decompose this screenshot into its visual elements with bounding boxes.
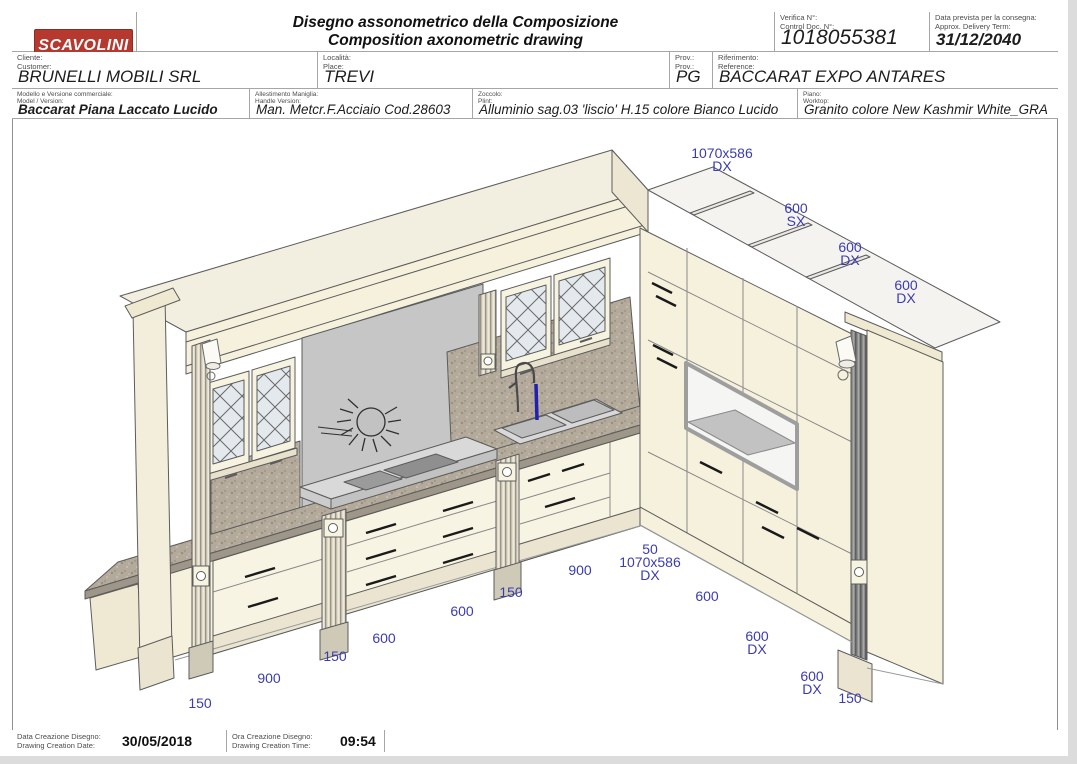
page-edge-bottom — [0, 756, 1077, 764]
model-value: Baccarat Piana Laccato Lucido — [18, 102, 218, 117]
creation-date-cell: Data Creazione Disegno: Drawing Creation… — [12, 730, 227, 752]
control-doc-cell: Verifica N°: Control Doc. N°: 1018055381 — [775, 12, 930, 52]
delivery-cell: Data prevista per la consegna: Approx. D… — [930, 12, 1058, 52]
customer-label-it: Cliente: — [12, 52, 317, 63]
prov-value: PG — [676, 67, 701, 87]
plinth-label-it: Zoccolo: — [473, 89, 797, 98]
worktop-cell: Piano: Worktop: Granito colore New Kashm… — [798, 89, 1058, 119]
creation-date-value: 30/05/2018 — [122, 733, 192, 749]
reference-cell: Riferimento: Reference: BACCARAT EXPO AN… — [713, 52, 1058, 89]
creation-date-label-it: Data Creazione Disegno: — [12, 730, 226, 741]
creation-date-label-en: Drawing Creation Date: — [12, 741, 226, 750]
title-cell: Disegno assonometrico della Composizione… — [137, 12, 775, 52]
customer-cell: Cliente: Customer: BRUNELLI MOBILI SRL — [12, 52, 318, 89]
creation-time-cell: Ora Creazione Disegno: Drawing Creation … — [227, 730, 385, 752]
control-doc-number: 1018055381 — [781, 26, 898, 50]
handle-value: Man. Metcr.F.Acciaio Cod.28603 — [256, 102, 450, 117]
logo-cell: SCAVOLINI — [12, 12, 137, 52]
place-cell: Località: Place: TREVI — [318, 52, 670, 89]
reference-label-it: Riferimento: — [713, 52, 1058, 63]
delivery-date: 31/12/2040 — [936, 30, 1021, 50]
plinth-value: Alluminio sag.03 'liscio' H.15 colore Bi… — [479, 102, 778, 117]
page-edge-right — [1068, 0, 1077, 764]
prov-cell: Prov.: Prov.: PG — [670, 52, 713, 89]
place-name: TREVI — [324, 67, 374, 87]
customer-name: BRUNELLI MOBILI SRL — [18, 67, 201, 87]
handle-cell: Allestimento Maniglia: Handle Version: M… — [250, 89, 473, 119]
plinth-cell: Zoccolo: Plint: Alluminio sag.03 'liscio… — [473, 89, 798, 119]
sheet-border — [12, 12, 1058, 752]
model-cell: Modello e Versione commerciale: Model / … — [12, 89, 250, 119]
control-doc-label-it: Verifica N°: — [775, 12, 929, 23]
reference-value: BACCARAT EXPO ANTARES — [719, 67, 945, 87]
worktop-label-it: Piano: — [798, 89, 1058, 98]
model-label-it: Modello e Versione commerciale: — [12, 89, 249, 98]
footer-empty-cell — [385, 730, 1058, 752]
prov-label-it: Prov.: — [670, 52, 712, 63]
worktop-value: Granito colore New Kashmir White_GRA — [804, 102, 1048, 117]
place-label-it: Località: — [318, 52, 669, 63]
creation-time-value: 09:54 — [340, 733, 376, 749]
document-title-en: Composition axonometric drawing — [328, 32, 583, 50]
handle-label-it: Allestimento Maniglia: — [250, 89, 472, 98]
scavolini-drawing-page: SCAVOLINI Disegno assonometrico della Co… — [0, 0, 1077, 764]
delivery-label-it: Data prevista per la consegna: — [930, 12, 1058, 23]
document-title-it: Disegno assonometrico della Composizione — [293, 14, 619, 32]
